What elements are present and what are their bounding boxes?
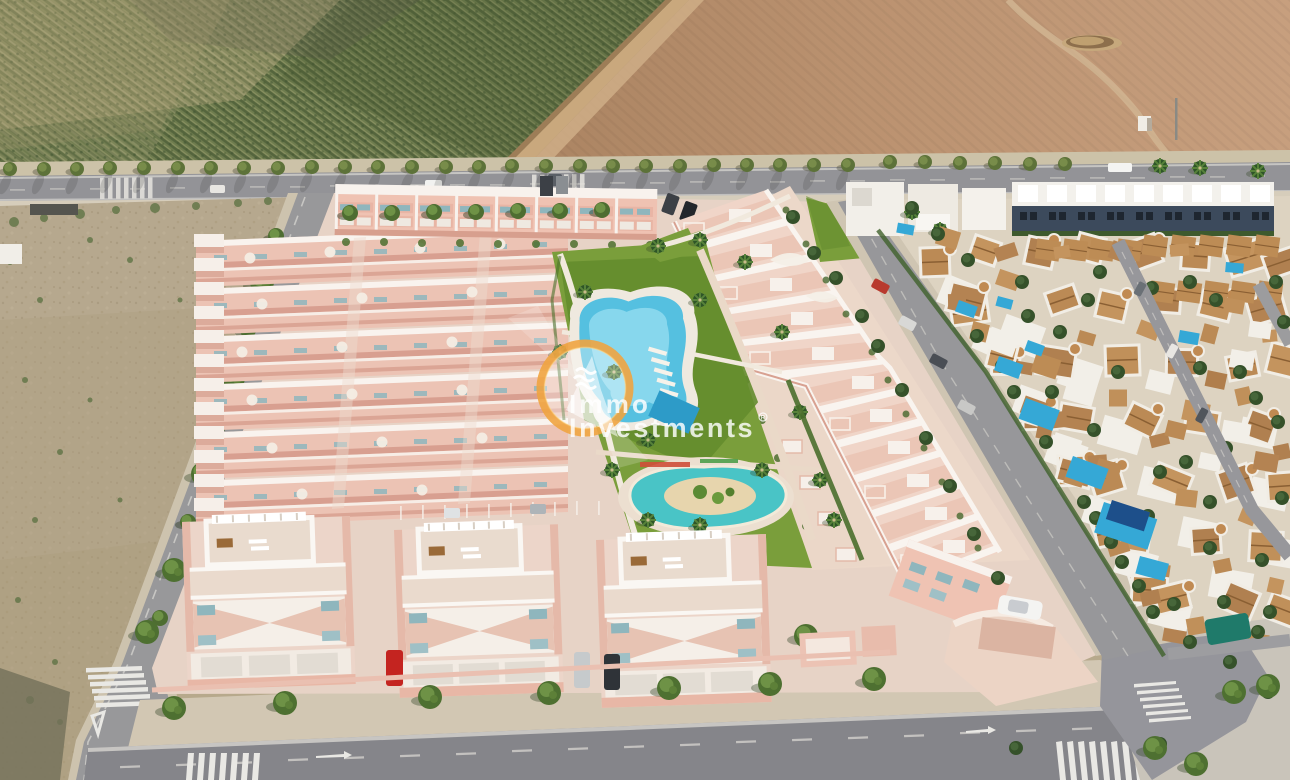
svg-text:Investments: Investments [569,413,755,443]
svg-text:R: R [761,416,766,422]
